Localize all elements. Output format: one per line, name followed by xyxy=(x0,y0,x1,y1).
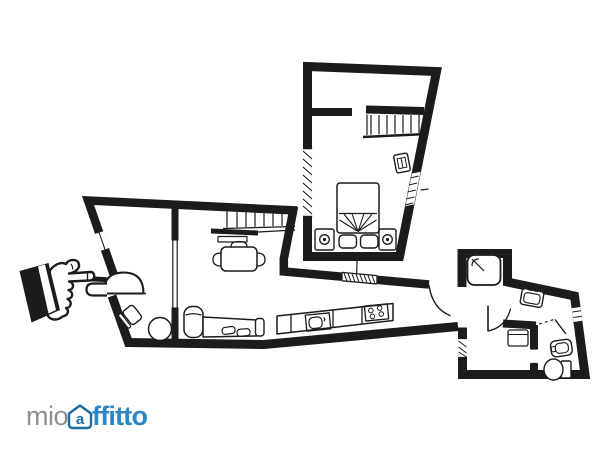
top-and-left-wall xyxy=(88,201,297,275)
toilet xyxy=(544,359,571,380)
entrance-step xyxy=(87,284,108,296)
pillow xyxy=(361,235,379,248)
tv-unit xyxy=(393,153,410,173)
cushion xyxy=(237,328,251,336)
pointing-hand-icon xyxy=(20,260,95,323)
nightstand-left xyxy=(315,229,334,250)
house-at-sign-icon: a xyxy=(67,403,93,431)
cushion xyxy=(222,326,236,335)
logo-suffix: ffitto xyxy=(92,403,147,430)
round-table xyxy=(149,318,172,341)
nightstand-right xyxy=(379,229,396,250)
window xyxy=(303,148,312,217)
window xyxy=(95,231,110,252)
floor-plan-drawing xyxy=(0,0,600,450)
armrest xyxy=(256,319,265,337)
shower xyxy=(468,255,501,285)
mioaffitto-logo: mio a ffitto xyxy=(26,403,147,430)
washing-machine xyxy=(508,330,528,346)
listing-photo: mio a ffitto xyxy=(0,0,600,450)
chair xyxy=(213,253,221,266)
window xyxy=(458,338,467,358)
corridor-door-arc xyxy=(429,286,450,316)
pillow xyxy=(339,235,357,248)
partition-wall xyxy=(173,205,177,343)
window xyxy=(342,272,377,284)
bedroom-partition-right xyxy=(366,110,424,112)
chair xyxy=(257,253,265,266)
wall-shelf xyxy=(211,229,295,243)
logo-prefix: mio xyxy=(26,403,68,430)
logo-symbol-letter: a xyxy=(76,411,85,428)
dining-table xyxy=(221,247,257,271)
kitchen-counter xyxy=(277,304,393,335)
double-bed xyxy=(337,183,379,248)
sofa-with-chaise xyxy=(184,307,264,338)
door-swing-arc xyxy=(104,273,144,294)
bedroom-stairs xyxy=(363,115,427,138)
wc-door xyxy=(539,320,566,335)
bidet xyxy=(550,339,573,358)
dining-set xyxy=(213,242,265,272)
chaise xyxy=(184,307,203,338)
